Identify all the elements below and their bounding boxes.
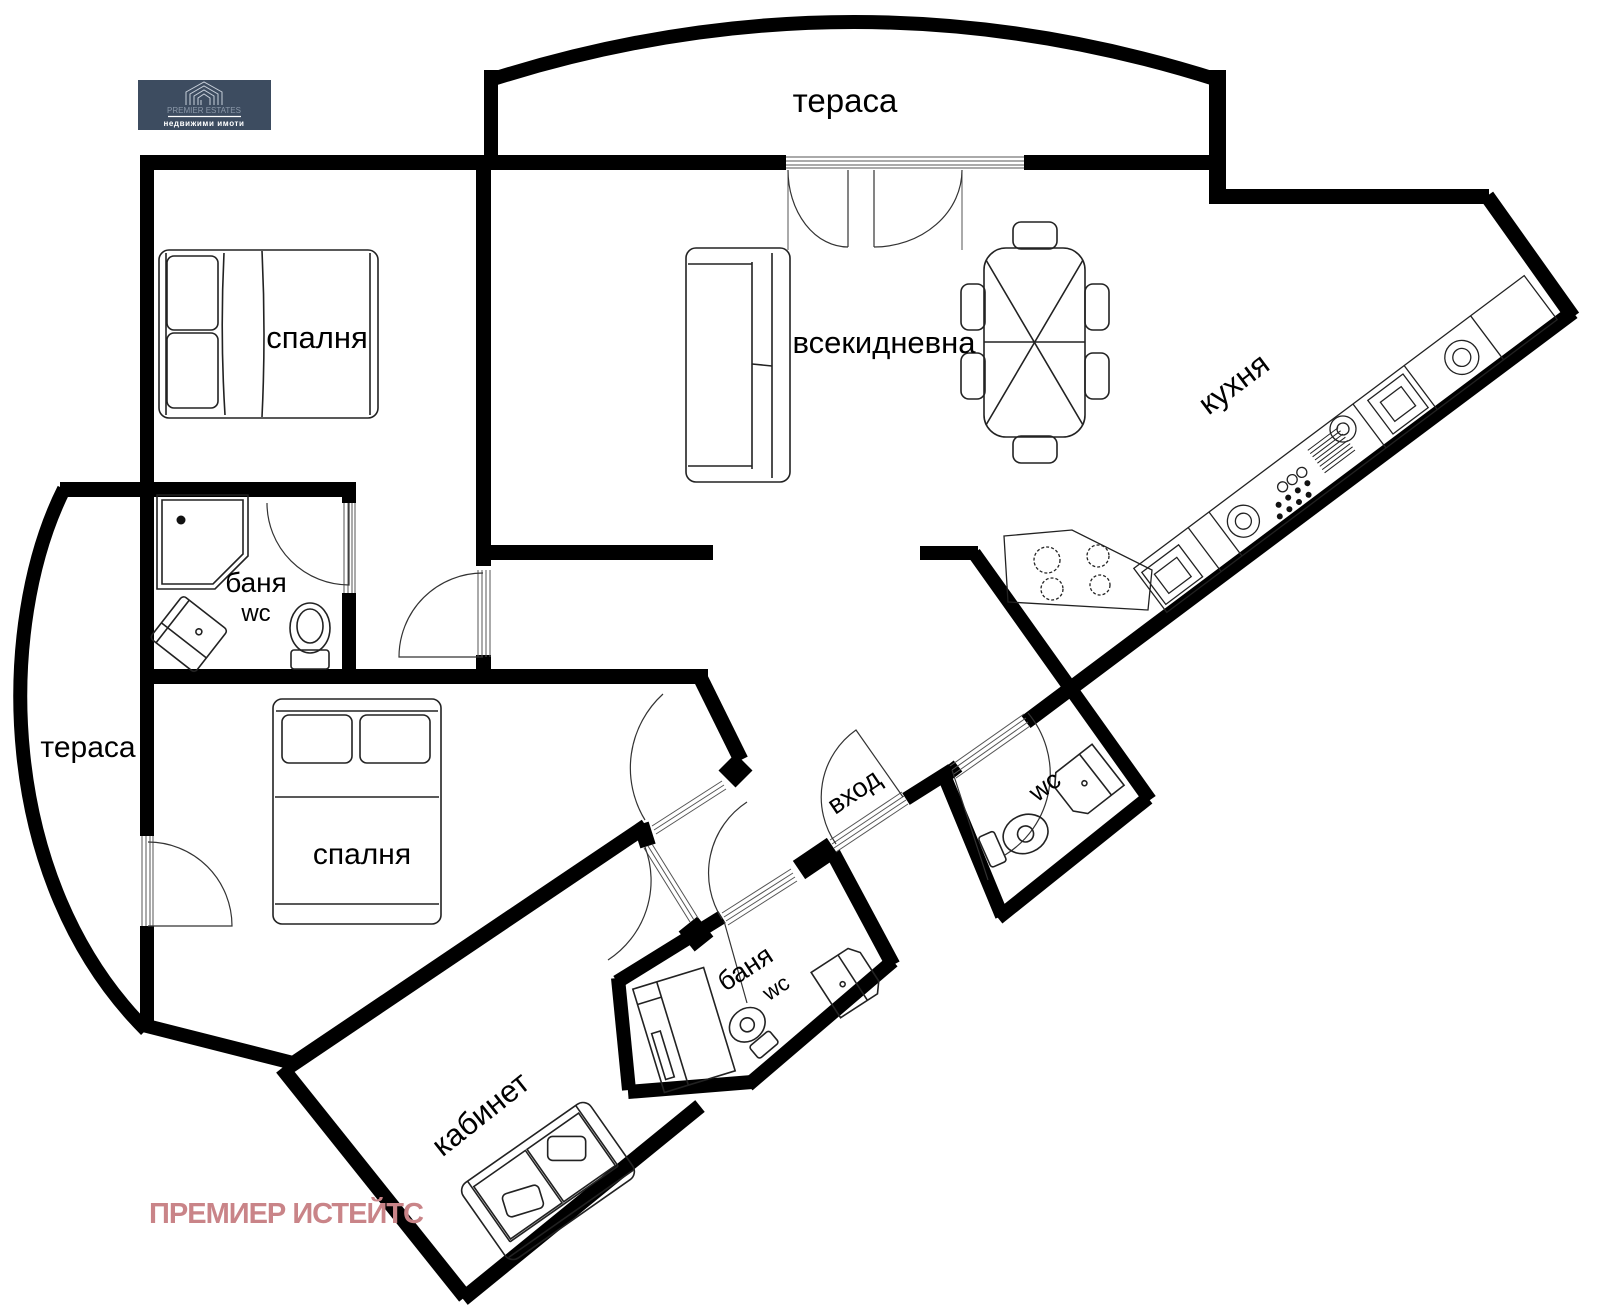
- svg-text:PREMIER ESTATES: PREMIER ESTATES: [167, 106, 241, 115]
- svg-text:недвижими имоти: недвижими имоти: [163, 119, 244, 128]
- svg-text:спалня: спалня: [313, 838, 411, 871]
- svg-text:баня: баня: [225, 567, 287, 598]
- svg-text:всекидневна: всекидневна: [792, 325, 976, 360]
- svg-text:тераса: тераса: [793, 82, 898, 119]
- svg-text:wc: wc: [240, 600, 270, 627]
- svg-text:тераса: тераса: [40, 731, 135, 764]
- svg-text:спалня: спалня: [266, 320, 368, 355]
- svg-text:ПРЕМИЕР ИСТЕЙТС: ПРЕМИЕР ИСТЕЙТС: [149, 1196, 424, 1230]
